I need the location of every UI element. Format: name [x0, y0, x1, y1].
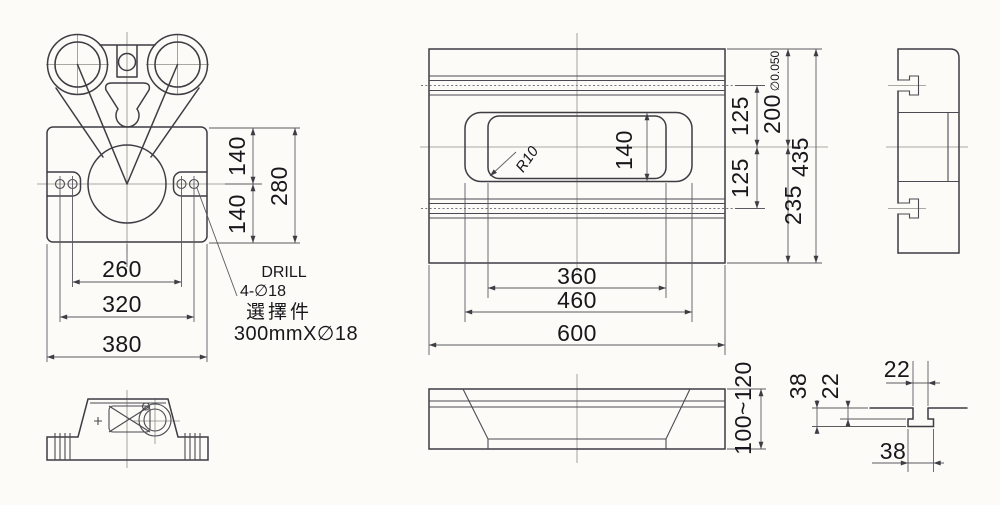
side-outline: [47, 399, 208, 460]
dim-text-260: 260: [102, 256, 142, 282]
dim-text-38-depth: 38: [785, 373, 811, 400]
note-drill-holes: 4-∅18: [240, 283, 286, 300]
side-plus-mark: [94, 417, 102, 425]
dim-text-360: 360: [557, 263, 597, 289]
note-r10: R10: [512, 143, 542, 176]
dim-text-125-upper: 125: [727, 96, 753, 136]
dim-text-140-lower: 140: [224, 194, 250, 234]
dim-text-280: 280: [266, 166, 292, 206]
dim-text-320: 320: [102, 291, 142, 317]
dim-text-140-slot: 140: [611, 130, 637, 170]
dim-text-140-upper: 140: [224, 136, 250, 176]
dim-text-380: 380: [102, 331, 142, 357]
note-option-spec: 300mmX∅18: [234, 323, 358, 345]
drawing-canvas: 140 140 280 260 320 380 DRILL 4-∅18 選擇件 …: [0, 0, 1000, 505]
drawing-svg: 140 140 280 260 320 380 DRILL 4-∅18 選擇件 …: [0, 0, 1000, 505]
tslot-detail-view: 22 38 38 22: [785, 356, 967, 472]
top-link-bar: [100, 45, 155, 77]
front-view: 140 140 280 260 320 380 DRILL 4-∅18 選擇件 …: [37, 32, 358, 362]
note-drill: DRILL: [261, 264, 306, 281]
elevation-recess: [463, 389, 690, 449]
r10-leader: [490, 152, 516, 176]
dim-text-460: 460: [557, 287, 597, 313]
note-option-label: 選擇件: [246, 301, 312, 323]
dim-text-tolerance: ∅0.050: [768, 50, 782, 91]
side-centerlines: [127, 390, 180, 468]
dim-text-600: 600: [557, 320, 597, 346]
dim-text-38-bottom: 38: [880, 438, 907, 464]
dim-text-22-depth: 22: [817, 373, 843, 400]
dim-text-100-120: 100~120: [730, 361, 756, 455]
detail-tslot-profile: [908, 408, 934, 427]
plan-view: R10 140 360 460 600 125 125 200 ∅0.050 2…: [420, 33, 828, 355]
dim-text-200: 200: [759, 94, 785, 134]
dim-text-22-top: 22: [884, 356, 911, 382]
elevation-view: 100~120: [429, 361, 766, 463]
end-view: [886, 49, 968, 253]
dim-text-235: 235: [780, 185, 806, 225]
dim-text-125-lower: 125: [727, 158, 753, 198]
dim-text-435: 435: [787, 137, 813, 177]
front-side-view: [47, 390, 208, 468]
teardrop-web: [106, 83, 150, 127]
